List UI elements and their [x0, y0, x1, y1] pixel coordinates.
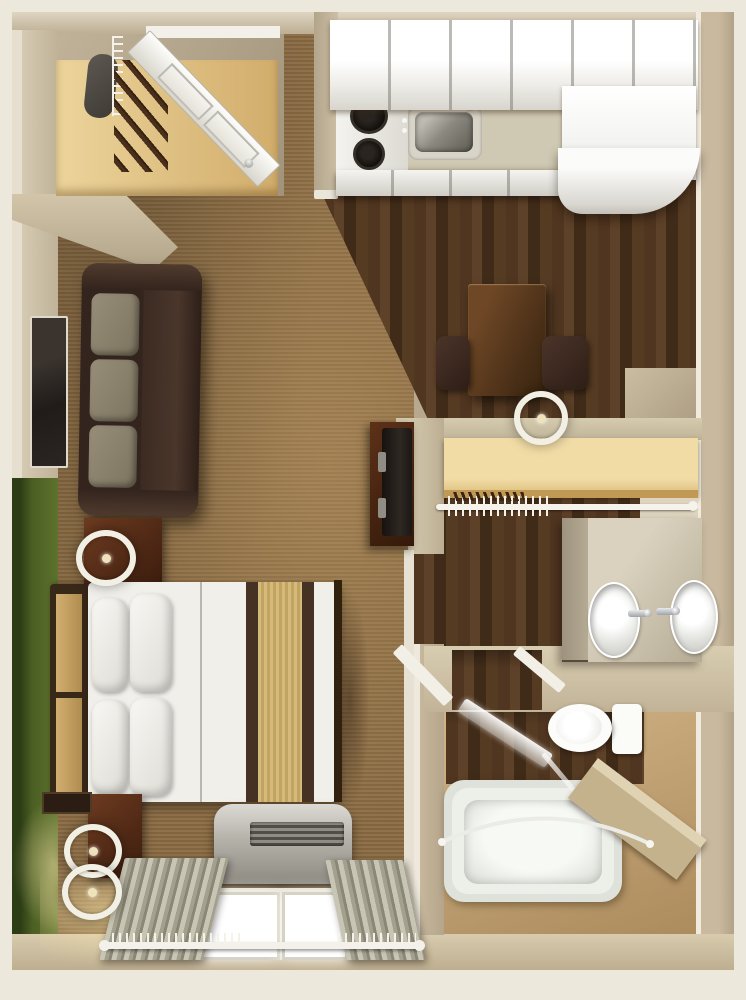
wall-art — [42, 792, 92, 814]
headboard — [50, 584, 90, 806]
faucet-handle — [672, 607, 680, 615]
duvet-fold — [200, 582, 202, 802]
vanity-drawers — [562, 518, 588, 662]
image-margin — [0, 970, 746, 1000]
stove-knobs — [402, 118, 407, 123]
right-exterior-wall — [696, 12, 734, 935]
sofa-armrest — [82, 263, 202, 291]
kitchen-sink — [408, 106, 482, 160]
vanity-sink-right — [670, 580, 718, 654]
bed-stripe — [246, 582, 258, 802]
pillow — [92, 700, 128, 794]
base-cabinets — [336, 170, 566, 196]
pillow — [130, 594, 172, 692]
bedside-lamp-icon — [76, 530, 136, 586]
curved-shower-rod — [434, 792, 660, 856]
television-icon — [382, 428, 412, 536]
ac-vent-grille — [250, 822, 344, 846]
curtain-hooks — [338, 933, 416, 944]
rod-finial — [688, 501, 698, 511]
faucet-handle — [644, 609, 652, 617]
image-margin — [0, 0, 12, 1000]
vanity-sink-left — [588, 582, 640, 658]
sofa-armrest — [78, 489, 198, 517]
sofa-cushion — [88, 425, 137, 488]
tv-bracket — [378, 452, 386, 472]
dining-table — [468, 284, 546, 396]
closet-shelf — [444, 438, 698, 496]
pillow — [130, 698, 172, 796]
dining-chair-left — [436, 336, 470, 390]
footboard — [334, 580, 342, 802]
sink-basin — [415, 112, 473, 152]
image-margin — [734, 0, 746, 1000]
bed-stripe — [302, 582, 314, 802]
tv-bracket — [378, 498, 386, 518]
wall-tv-icon — [30, 316, 68, 468]
curtain-hooks — [112, 933, 244, 944]
image-margin — [0, 0, 746, 12]
wall-end-cap — [314, 190, 338, 199]
floor-lamp-icon — [62, 864, 122, 920]
headboard-panel — [56, 594, 82, 692]
sofa-cushion — [91, 293, 140, 356]
bed-runner — [258, 582, 302, 802]
sofa-cushion — [89, 359, 138, 422]
sofa — [78, 263, 202, 517]
stove-burner-icon — [353, 138, 385, 170]
dining-chair-right — [542, 336, 588, 390]
table-lamp-icon — [514, 391, 568, 445]
toilet — [548, 704, 612, 752]
headboard-panel — [56, 698, 82, 796]
toilet-tank — [612, 704, 642, 754]
hanger-hooks — [452, 492, 524, 501]
entry-door-frame — [146, 26, 280, 38]
rod-finial — [99, 940, 110, 951]
toilet-seat — [556, 710, 602, 744]
floor-plan — [0, 0, 746, 1000]
sofa-back — [140, 264, 202, 517]
pillow — [92, 598, 128, 692]
